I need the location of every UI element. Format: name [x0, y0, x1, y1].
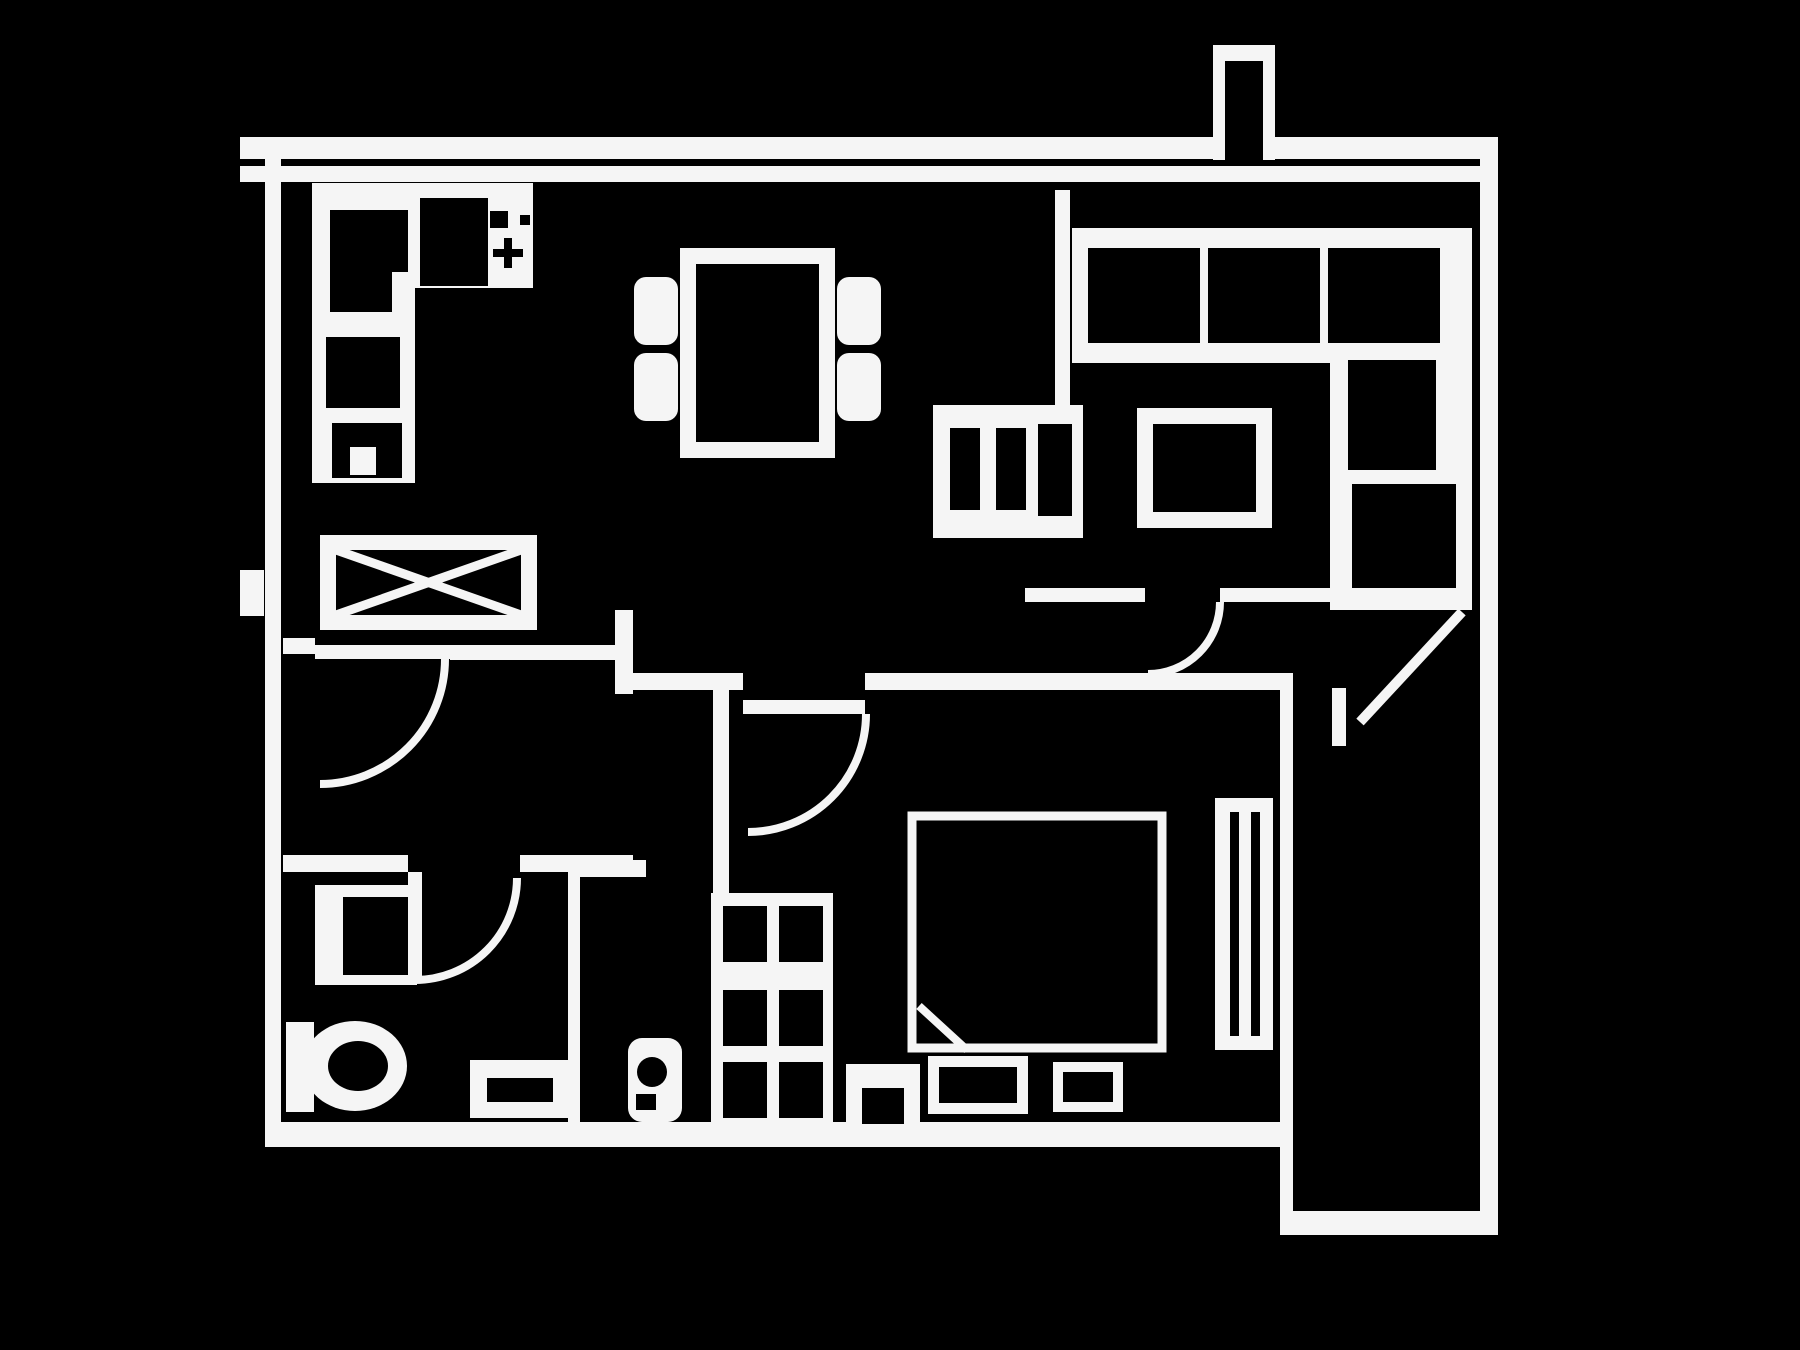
floor-plan [0, 0, 1800, 1350]
wardrobe-cell-5 [723, 1062, 767, 1118]
dining-chair-bottom-left [634, 353, 678, 421]
outer-wall-bottom [265, 1122, 1293, 1147]
sofa-cushion-2 [1208, 248, 1320, 343]
stove-burner-1 [464, 213, 480, 228]
duct-protrusion-inner [1225, 61, 1263, 160]
tv-stand-slot-3 [1038, 424, 1072, 516]
wardrobe-cell-2 [779, 906, 823, 962]
wardrobe-cell-3 [723, 990, 767, 1046]
bathroom-sink-basin [487, 1078, 553, 1102]
bedroom-balcony-wall [1280, 690, 1293, 1211]
sofa-right-cushion-2 [1352, 484, 1456, 588]
floor-plan-canvas [0, 0, 1800, 1350]
living-bottom-wall-left [1025, 588, 1145, 602]
stove-plus-vertical [504, 238, 512, 268]
hall-top-wall-right [450, 645, 633, 660]
wardrobe-cell-1 [723, 906, 767, 962]
outer-wall-top-line [240, 137, 1498, 159]
entry-door-leaf [315, 645, 450, 659]
closet-fixture-slot [636, 1094, 656, 1110]
balcony-door-jamb [1332, 688, 1346, 746]
washing-machine [343, 897, 408, 975]
bedroom-top-wall-left [630, 673, 743, 690]
inner-wall-top-line [240, 166, 1480, 182]
bed-foot-box-1-inner [939, 1067, 1017, 1103]
bed-foot-box-2-inner [1063, 1072, 1113, 1102]
bed-outline [912, 816, 1162, 1048]
outer-wall-right [1480, 137, 1498, 1235]
bedroom-door-leaf [743, 700, 865, 714]
balcony-bottom-wall [1280, 1211, 1498, 1235]
outer-wall-left [265, 137, 281, 1147]
bedroom-radiator-stripe-2 [1251, 812, 1260, 1036]
bathroom-door-swing-arc [415, 878, 517, 980]
closet-top-wall [580, 860, 646, 877]
tv-stand-slot-2 [996, 428, 1026, 510]
bedroom-door-swing-arc [748, 714, 866, 832]
entry-threshold-mark [240, 570, 264, 616]
kitchen-sink-basin [350, 447, 376, 475]
bedroom-radiator-stripe-1 [1230, 812, 1239, 1036]
balcony-door-leaf [1360, 612, 1462, 722]
toilet-bowl-inner [328, 1041, 388, 1091]
dining-chair-top-right [837, 277, 881, 345]
wardrobe-cell-6 [779, 1062, 823, 1118]
kitchen-sink-block [330, 252, 392, 312]
coffee-table-inner [1153, 424, 1256, 512]
bedroom-left-wall [713, 690, 729, 895]
stove-burner-2 [490, 211, 508, 228]
entry-door-swing-arc [320, 659, 445, 784]
wardrobe-cell-4 [779, 990, 823, 1046]
closet-fixture-inner [637, 1057, 667, 1087]
sofa-cushion-1 [1088, 248, 1200, 343]
stove-burner-3 [520, 215, 530, 225]
dining-chair-bottom-right [837, 353, 881, 421]
kitchen-living-divider [1055, 190, 1070, 408]
dining-chair-top-left [634, 277, 678, 345]
hall-top-wall-left [283, 638, 315, 654]
bath-top-wall-left [283, 855, 408, 872]
bedroom-chair-inner [862, 1088, 904, 1124]
tv-stand-slot-1 [950, 428, 980, 510]
bedroom-top-wall-right [865, 673, 1293, 690]
sofa-cushion-3 [1328, 248, 1440, 343]
bedroom-radiator [1215, 798, 1273, 1050]
bath-closet-divider [568, 872, 580, 1122]
dining-table-inner [696, 264, 819, 442]
stove-burner-4 [466, 242, 478, 254]
sofa-right-cushion-1 [1348, 360, 1436, 470]
kitchen-base-cabinet [326, 337, 400, 408]
corridor-door-swing-arc [1148, 602, 1220, 674]
